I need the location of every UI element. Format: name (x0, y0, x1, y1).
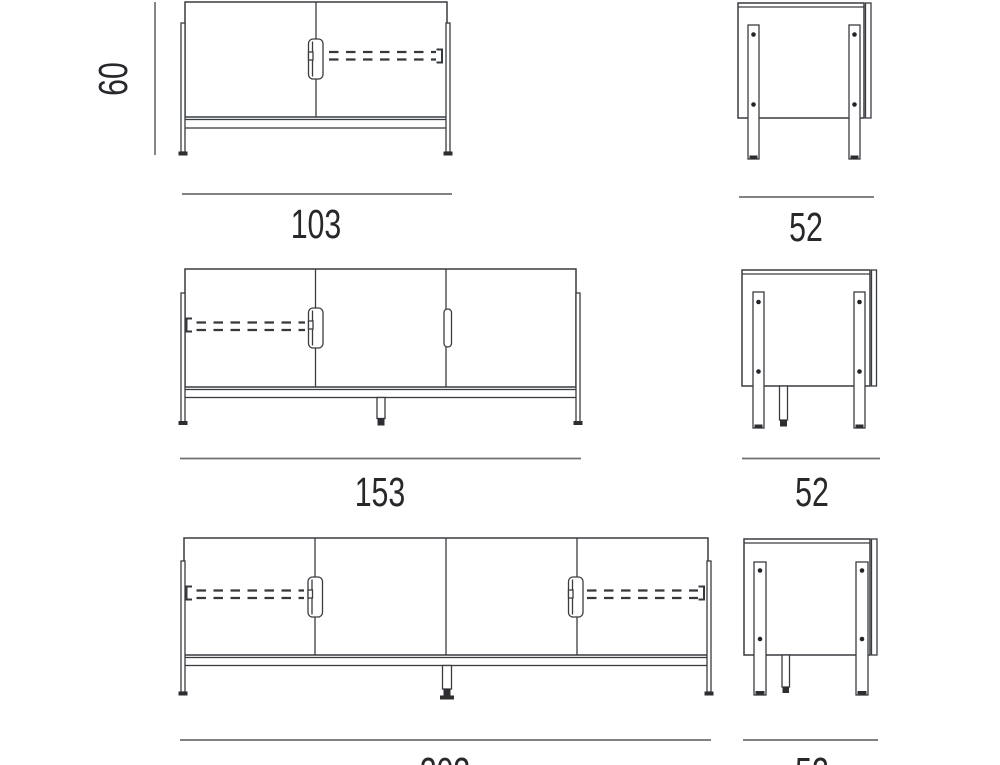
back-leg (849, 25, 860, 159)
door-front-strip (872, 270, 877, 386)
back-leg-foot (856, 425, 864, 429)
cabinet-body (185, 269, 576, 387)
width-dimension-label: 153 (355, 468, 406, 515)
figure-3door-front: 153 (179, 269, 583, 515)
center-foot (783, 687, 790, 693)
handle-notch (309, 321, 314, 329)
front-leg-foot (755, 425, 763, 429)
base-rail (183, 390, 578, 398)
right-foot (705, 692, 714, 696)
right-foot (444, 152, 453, 156)
figure-2door-side: 52 (738, 3, 874, 250)
bolt (758, 637, 763, 642)
width-dimension-label: 203 (420, 748, 471, 765)
right-leg (707, 561, 711, 692)
depth-dimension-label: 52 (789, 203, 823, 250)
width-dimension-label: 103 (291, 200, 342, 247)
front-leg-foot (750, 156, 758, 160)
door-front-strip (872, 539, 878, 655)
depth-dimension-label: 52 (795, 468, 829, 515)
door-handle-half (444, 309, 452, 347)
left-leg (181, 23, 185, 152)
handle-notch (309, 52, 314, 60)
door-handle (309, 39, 324, 79)
bolt (857, 369, 862, 374)
right-foot (574, 421, 583, 425)
left-foot (179, 152, 188, 156)
front-leg (753, 292, 764, 428)
height-dimension-label: 60 (89, 62, 136, 96)
bolt (751, 32, 756, 37)
front-leg (754, 562, 766, 695)
sideboard-dimension-diagram: 60 103 (0, 0, 1000, 765)
base-rail (183, 120, 449, 129)
center-foot-nut (444, 689, 451, 696)
figure-4door-side: 52 (743, 539, 878, 765)
door-front-strip (866, 3, 872, 118)
door-handle (308, 577, 323, 617)
bolt (758, 568, 763, 573)
figure-4door-front: 203 (179, 538, 714, 765)
left-foot (179, 692, 188, 696)
bolt (751, 102, 756, 107)
left-leg (181, 293, 185, 422)
bolt (860, 637, 865, 642)
bolt (857, 300, 862, 305)
center-leg (377, 398, 385, 419)
bolt (756, 369, 761, 374)
figure-2door-front: 60 103 (89, 2, 452, 247)
back-leg-foot (851, 156, 859, 160)
center-foot (378, 418, 385, 426)
left-leg (181, 561, 185, 692)
bolt (756, 300, 761, 305)
door-handle (309, 308, 324, 348)
depth-dimension-label: 52 (795, 748, 829, 765)
right-leg (576, 293, 580, 422)
bolt (852, 102, 857, 107)
bolt (860, 568, 865, 573)
front-leg (748, 25, 759, 159)
center-leg (782, 655, 790, 687)
handle-notch (569, 590, 574, 598)
center-foot (780, 420, 787, 427)
back-leg-foot (858, 691, 867, 695)
back-leg (856, 562, 868, 695)
base-rail (183, 658, 709, 666)
door-handle (569, 577, 584, 617)
handle-notch (308, 590, 313, 598)
bolt (852, 32, 857, 37)
front-leg-foot (756, 691, 765, 695)
left-foot (179, 421, 188, 425)
technical-drawing-canvas: 60 103 (0, 0, 1000, 765)
center-adjustable-leg (443, 666, 452, 690)
back-leg (854, 292, 865, 428)
right-leg (446, 23, 450, 152)
center-leg (780, 386, 788, 420)
figure-3door-side: 52 (742, 270, 880, 515)
center-foot-plate (440, 696, 454, 700)
